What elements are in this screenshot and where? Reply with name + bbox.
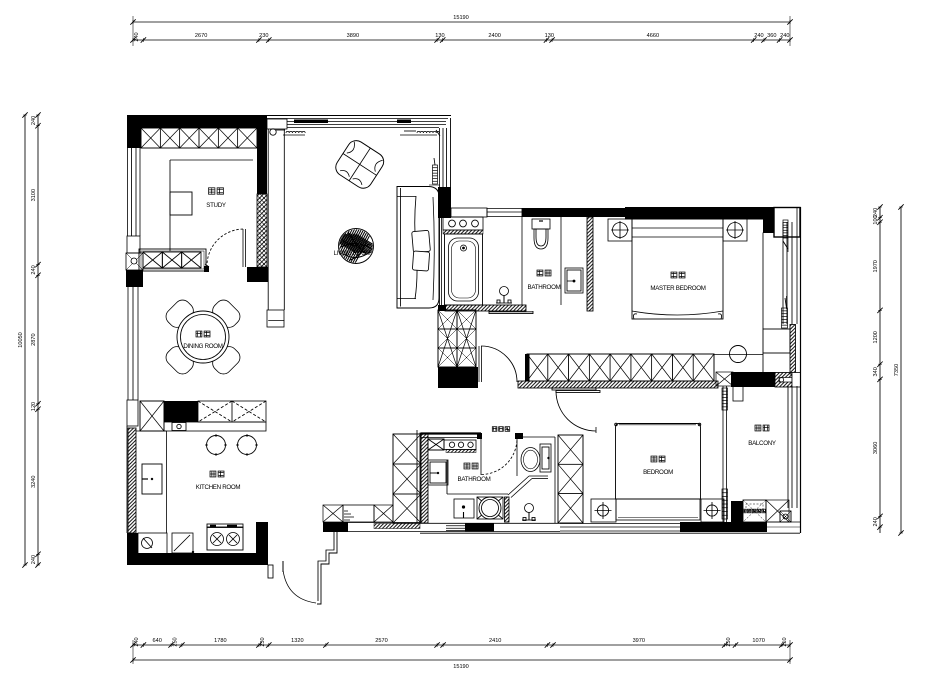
- svg-text:1070: 1070: [752, 638, 764, 644]
- svg-text:1200: 1200: [873, 331, 879, 343]
- svg-text:BALCONY: BALCONY: [748, 440, 776, 447]
- svg-text:130: 130: [545, 33, 554, 39]
- svg-text:360: 360: [767, 33, 776, 39]
- svg-text:BATHROOM: BATHROOM: [528, 284, 561, 291]
- svg-text:240: 240: [873, 517, 879, 526]
- svg-text:BATHROOM: BATHROOM: [458, 476, 491, 483]
- svg-text:2570: 2570: [375, 638, 387, 644]
- svg-text:340: 340: [873, 367, 879, 376]
- svg-text:240: 240: [31, 116, 37, 125]
- svg-text:3970: 3970: [633, 638, 645, 644]
- svg-text:250: 250: [173, 637, 179, 646]
- svg-text:MASTER BEDROOM: MASTER BEDROOM: [650, 285, 705, 292]
- svg-text:230: 230: [260, 637, 266, 646]
- svg-text:1320: 1320: [291, 638, 303, 644]
- svg-text:120: 120: [31, 402, 37, 411]
- svg-text:240: 240: [754, 33, 763, 39]
- svg-text:1780: 1780: [214, 638, 226, 644]
- svg-text:130: 130: [435, 33, 444, 39]
- svg-text:3890: 3890: [347, 33, 359, 39]
- svg-text:3240: 3240: [31, 475, 37, 487]
- svg-text:3100: 3100: [31, 189, 37, 201]
- svg-text:BEDROOM: BEDROOM: [643, 469, 673, 476]
- svg-text:2870: 2870: [31, 333, 37, 345]
- svg-text:640: 640: [153, 638, 162, 644]
- svg-text:240: 240: [134, 32, 140, 41]
- svg-text:LIVING ROOM: LIVING ROOM: [334, 251, 371, 257]
- svg-text:2400: 2400: [488, 33, 500, 39]
- svg-text:2670: 2670: [195, 33, 207, 39]
- svg-text:15190: 15190: [453, 15, 469, 21]
- svg-text:15190: 15190: [453, 664, 469, 670]
- svg-text:4660: 4660: [647, 33, 659, 39]
- svg-text:210: 210: [782, 637, 788, 646]
- svg-text:2410: 2410: [489, 638, 501, 644]
- svg-text:240: 240: [31, 265, 37, 274]
- svg-text:100: 100: [873, 215, 879, 224]
- svg-text:STUDY: STUDY: [206, 202, 226, 209]
- svg-text:KITCHEN ROOM: KITCHEN ROOM: [196, 484, 241, 491]
- svg-text:240: 240: [31, 555, 37, 564]
- svg-text:3060: 3060: [873, 442, 879, 454]
- svg-text:230: 230: [259, 33, 268, 39]
- svg-text:250: 250: [726, 637, 732, 646]
- svg-text:1970: 1970: [873, 260, 879, 272]
- svg-text:10050: 10050: [18, 332, 24, 348]
- svg-text:240: 240: [134, 637, 140, 646]
- svg-text:240: 240: [780, 33, 789, 39]
- svg-text:7350: 7350: [894, 364, 900, 376]
- svg-text:DINING ROOM: DINING ROOM: [183, 343, 222, 350]
